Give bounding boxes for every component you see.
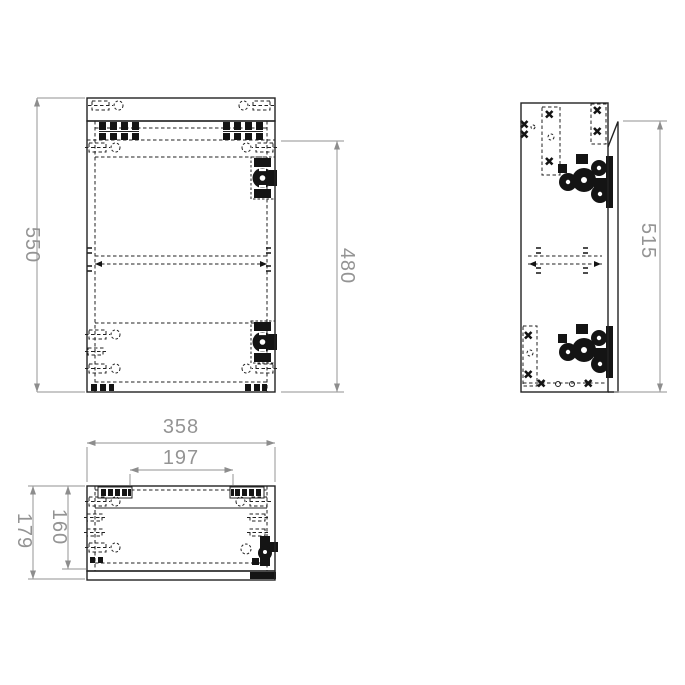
- shelf-pin-icon: [583, 248, 588, 253]
- hinge-icon: [251, 321, 277, 363]
- dimension-inner-depth-label: 160: [49, 509, 69, 545]
- arrowhead-icon: [65, 486, 71, 495]
- drill-holes-icon: [90, 557, 103, 563]
- dimension-width-label: 358: [163, 417, 199, 437]
- shelf-pin-icon: [87, 248, 92, 253]
- shelf-pin-icon: [87, 266, 92, 271]
- drill-holes-icon: [247, 529, 268, 536]
- hinge-icon: [250, 536, 278, 579]
- dimension-front-height-label: 550: [22, 227, 42, 263]
- arrowhead-icon: [657, 384, 663, 393]
- shelf-pin-icon: [536, 268, 541, 273]
- hinge-icon: [251, 157, 277, 199]
- drill-holes-icon: [91, 384, 267, 391]
- drill-holes-icon: [85, 364, 120, 373]
- arrowhead-icon: [657, 121, 663, 130]
- mounting-plate-icon: [98, 487, 132, 498]
- arrowhead-icon: [65, 561, 71, 570]
- drawing-linework: [0, 0, 685, 685]
- screw-cross-icon: [594, 107, 601, 114]
- arrowhead-icon: [87, 440, 96, 446]
- mounting-plate-icon: [223, 122, 263, 140]
- drill-holes-icon: [242, 143, 277, 152]
- screw-cross-icon: [594, 128, 601, 135]
- drill-holes-icon: [85, 330, 120, 339]
- top-view: [84, 486, 278, 580]
- technical-drawing-canvas: 550 480 515 358 197 179 160: [0, 0, 685, 685]
- drill-holes-icon: [85, 543, 120, 552]
- drill-holes-icon: [88, 101, 123, 110]
- dimension-hinge-spacing-label: 197: [163, 448, 199, 468]
- arrowhead-icon: [334, 384, 340, 393]
- dimension-side-height-label: 515: [638, 223, 658, 259]
- side-view: [521, 103, 618, 392]
- screw-cross-icon: [525, 332, 532, 339]
- mounting-plate-icon: [230, 487, 264, 498]
- dimension-197-line: [130, 467, 233, 485]
- hinge-icon: [558, 324, 613, 378]
- door-panel-edge: [87, 571, 275, 580]
- drill-holes-icon: [247, 514, 268, 521]
- screw-cross-icon: [525, 371, 532, 378]
- arrowhead-icon: [34, 98, 40, 107]
- screw-cross-icon: [521, 121, 528, 128]
- arrowhead-icon: [130, 467, 139, 473]
- arrowhead-icon: [30, 571, 36, 580]
- shelf-pin-icon: [536, 248, 541, 253]
- screw-cross-icon: [521, 131, 528, 138]
- front-view: [85, 98, 277, 392]
- dimension-depth-label: 179: [14, 513, 34, 549]
- hinge-icon: [558, 154, 613, 208]
- screw-cross-icon: [546, 111, 553, 118]
- dimension-door-height-label: 480: [337, 248, 357, 284]
- mounting-plate-icon: [99, 122, 139, 140]
- arrowhead-icon: [30, 486, 36, 495]
- arrowhead-icon: [267, 440, 276, 446]
- drill-holes-icon: [242, 364, 277, 373]
- arrowhead-icon: [334, 141, 340, 150]
- screw-cross-icon: [546, 158, 553, 165]
- drill-holes-icon: [239, 101, 274, 110]
- arrowhead-icon: [34, 384, 40, 393]
- drill-holes-icon: [85, 143, 120, 152]
- dimension-480-line: [281, 141, 344, 392]
- arrowhead-icon: [225, 467, 234, 473]
- shelf-pin-icon: [583, 268, 588, 273]
